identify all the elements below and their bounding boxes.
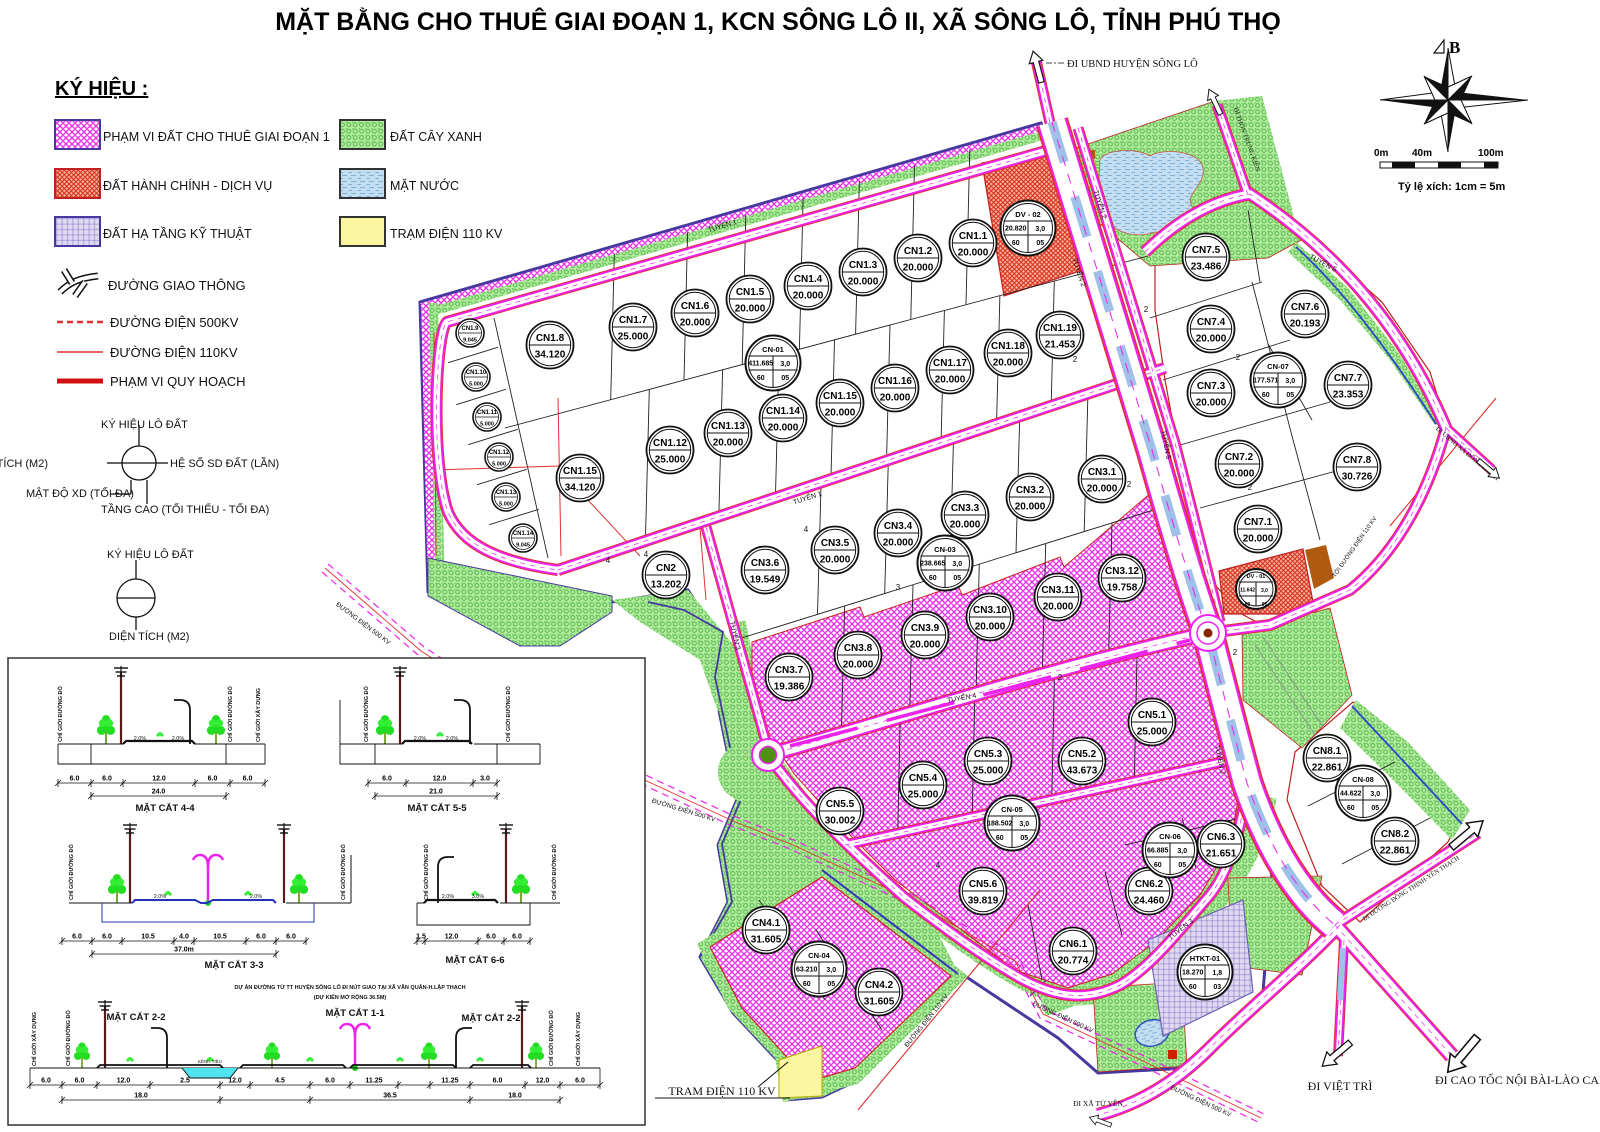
svg-text:CHỈ GIỚI ĐƯỜNG ĐỎ: CHỈ GIỚI ĐƯỜNG ĐỎ [67, 843, 75, 900]
svg-text:CN1.1: CN1.1 [959, 231, 988, 242]
svg-text:ĐI VIỆT TRÌ: ĐI VIỆT TRÌ [1308, 1079, 1373, 1093]
svg-text:ĐƯỜNG ĐIỆN 110KV: ĐƯỜNG ĐIỆN 110KV [110, 345, 238, 360]
svg-text:10.5: 10.5 [213, 934, 227, 941]
svg-text:CN1.16: CN1.16 [878, 376, 912, 387]
svg-text:CHỈ GIỚI ĐƯỜNG ĐỎ: CHỈ GIỚI ĐƯỜNG ĐỎ [550, 843, 558, 900]
svg-text:100m: 100m [1478, 148, 1504, 159]
svg-text:34.120: 34.120 [535, 350, 566, 361]
svg-text:31.605: 31.605 [751, 935, 782, 946]
svg-text:CHỈ GIỚI ĐƯỜNG ĐỎ: CHỈ GIỚI ĐƯỜNG ĐỎ [56, 685, 64, 742]
svg-text:2: 2 [1144, 305, 1149, 314]
svg-text:6.0: 6.0 [72, 934, 82, 941]
svg-text:CN8.2: CN8.2 [1381, 829, 1410, 840]
svg-text:CN1.2: CN1.2 [904, 246, 933, 257]
svg-text:CN-03: CN-03 [934, 545, 956, 554]
svg-text:CHỈ GIỚI ĐƯỜNG ĐỎ: CHỈ GIỚI ĐƯỜNG ĐỎ [422, 843, 430, 900]
svg-text:MẶT CẮT 5-5: MẶT CẮT 5-5 [407, 803, 467, 814]
svg-text:3,0: 3,0 [1261, 588, 1268, 594]
svg-text:20.000: 20.000 [950, 520, 981, 531]
svg-text:20.000: 20.000 [1196, 334, 1227, 345]
svg-text:3,0: 3,0 [1019, 821, 1029, 828]
svg-text:05: 05 [953, 575, 961, 582]
svg-text:(DỰ KIẾN MỞ RỘNG 36.5M): (DỰ KIẾN MỞ RỘNG 36.5M) [314, 993, 387, 1001]
svg-text:CN5.4: CN5.4 [909, 773, 938, 784]
svg-text:4: 4 [644, 550, 649, 559]
svg-text:CN5.2: CN5.2 [1068, 749, 1097, 760]
svg-text:MẬT ĐỘ XD (TỐI ĐA): MẬT ĐỘ XD (TỐI ĐA) [26, 486, 134, 500]
svg-text:20.000: 20.000 [768, 423, 799, 434]
svg-text:CN3.2: CN3.2 [1016, 485, 1045, 496]
svg-text:CN3.5: CN3.5 [821, 538, 850, 549]
svg-text:ĐẤT HẠ TẦNG KỸ THUẬT: ĐẤT HẠ TẦNG KỸ THUẬT [103, 226, 252, 241]
svg-text:KÝ HIỆU LÔ ĐẤT: KÝ HIỆU LÔ ĐẤT [107, 548, 194, 561]
svg-text:CHỈ GIỚI XÂY DỰNG: CHỈ GIỚI XÂY DỰNG [574, 1012, 582, 1066]
svg-text:20.000: 20.000 [680, 318, 711, 329]
svg-text:2.0%: 2.0% [172, 736, 185, 742]
svg-text:2.0%: 2.0% [134, 736, 147, 742]
svg-text:KÊNH TIÊU: KÊNH TIÊU [198, 1057, 222, 1064]
svg-text:CN1.8: CN1.8 [536, 333, 565, 344]
svg-text:21.453: 21.453 [1045, 340, 1076, 351]
svg-text:6.0: 6.0 [486, 934, 496, 941]
svg-text:CHỈ GIỚI ĐƯỜNG ĐỎ: CHỈ GIỚI ĐƯỜNG ĐỎ [226, 685, 234, 742]
svg-text:CN1.15: CN1.15 [823, 391, 857, 402]
svg-text:6.0: 6.0 [325, 1078, 335, 1085]
svg-text:ĐƯỜNG ĐIỆN 500KV: ĐƯỜNG ĐIỆN 500KV [110, 315, 239, 330]
svg-text:66.885: 66.885 [1147, 848, 1169, 855]
svg-text:20.000: 20.000 [903, 263, 934, 274]
svg-text:2: 2 [1127, 480, 1132, 489]
svg-text:CN1.6: CN1.6 [681, 301, 710, 312]
svg-text:CN1.14: CN1.14 [513, 531, 534, 537]
svg-text:2: 2 [1073, 355, 1078, 364]
svg-text:20.000: 20.000 [735, 304, 766, 315]
svg-text:CN1.11: CN1.11 [477, 410, 498, 416]
svg-text:3,0: 3,0 [1285, 378, 1295, 385]
svg-text:21.0: 21.0 [429, 789, 443, 796]
svg-text:CN8.1: CN8.1 [1313, 746, 1342, 757]
svg-text:60: 60 [1012, 240, 1020, 247]
svg-text:CN5.6: CN5.6 [969, 879, 998, 890]
svg-text:18.0: 18.0 [508, 1093, 522, 1100]
svg-text:18.0: 18.0 [134, 1093, 148, 1100]
svg-text:CN5.3: CN5.3 [974, 749, 1003, 760]
svg-text:21.651: 21.651 [1206, 849, 1237, 860]
svg-text:CHỈ GIỚI ĐƯỜNG ĐỎ: CHỈ GIỚI ĐƯỜNG ĐỎ [504, 685, 512, 742]
svg-text:HTKT-01: HTKT-01 [1190, 954, 1220, 963]
svg-text:HỆ SỐ SD ĐẤT (LẦN): HỆ SỐ SD ĐẤT (LẦN) [170, 456, 279, 470]
svg-text:CN6.1: CN6.1 [1059, 939, 1088, 950]
svg-text:CN3.8: CN3.8 [844, 643, 873, 654]
svg-text:20.000: 20.000 [843, 660, 874, 671]
svg-text:2.0%: 2.0% [250, 894, 263, 900]
svg-text:23.353: 23.353 [1333, 390, 1364, 401]
svg-text:20.000: 20.000 [825, 408, 856, 419]
svg-text:40m: 40m [1412, 148, 1432, 159]
svg-text:CN1.4: CN1.4 [794, 274, 823, 285]
svg-text:20.000: 20.000 [935, 375, 966, 386]
svg-text:CN3.4: CN3.4 [884, 521, 913, 532]
svg-text:CN7.5: CN7.5 [1192, 245, 1221, 256]
svg-text:60: 60 [1245, 602, 1251, 608]
svg-text:12.0: 12.0 [536, 1078, 550, 1085]
svg-text:60: 60 [1189, 984, 1197, 991]
svg-text:12.0: 12.0 [433, 776, 447, 783]
svg-text:3,0: 3,0 [1035, 226, 1045, 233]
svg-text:177.571: 177.571 [1253, 378, 1278, 385]
svg-text:18.270: 18.270 [1182, 970, 1204, 977]
svg-text:DV - 02: DV - 02 [1015, 210, 1040, 219]
svg-text:60: 60 [1154, 862, 1162, 869]
svg-text:36.5: 36.5 [383, 1093, 397, 1100]
svg-text:9.045: 9.045 [516, 543, 530, 549]
svg-text:24.460: 24.460 [1134, 896, 1165, 907]
svg-text:CN1.13: CN1.13 [496, 490, 517, 496]
svg-text:60: 60 [996, 835, 1004, 842]
svg-text:ĐƯỜNG GIAO THÔNG: ĐƯỜNG GIAO THÔNG [108, 278, 246, 293]
svg-text:19.758: 19.758 [1107, 583, 1138, 594]
svg-text:CN1.5: CN1.5 [736, 287, 765, 298]
svg-text:20.000: 20.000 [1087, 484, 1118, 495]
svg-text:11.25: 11.25 [441, 1078, 458, 1085]
svg-text:1,8: 1,8 [1212, 970, 1222, 977]
svg-text:03: 03 [1213, 984, 1221, 991]
svg-text:22.861: 22.861 [1312, 763, 1343, 774]
svg-text:MẶT NƯỚC: MẶT NƯỚC [390, 178, 459, 193]
svg-text:2.5: 2.5 [180, 1078, 190, 1085]
svg-text:MẶT CẮT 1-1: MẶT CẮT 1-1 [325, 1008, 385, 1019]
svg-text:20.000: 20.000 [793, 291, 824, 302]
svg-text:12.0: 12.0 [117, 1078, 131, 1085]
svg-text:3,0: 3,0 [1370, 791, 1380, 798]
svg-text:22.861: 22.861 [1380, 846, 1411, 857]
svg-text:20.000: 20.000 [1196, 398, 1227, 409]
svg-text:20.000: 20.000 [1015, 502, 1046, 513]
svg-text:CN1.9: CN1.9 [461, 326, 479, 332]
svg-text:MẶT CẮT 2-2: MẶT CẮT 2-2 [106, 1012, 165, 1023]
svg-text:CN1.3: CN1.3 [849, 260, 878, 271]
svg-text:20.000: 20.000 [880, 393, 911, 404]
svg-text:4: 4 [804, 525, 809, 534]
svg-text:6.0: 6.0 [256, 934, 266, 941]
svg-text:60: 60 [1262, 392, 1270, 399]
svg-text:CN7.2: CN7.2 [1225, 452, 1254, 463]
svg-text:CN-07: CN-07 [1267, 362, 1289, 371]
svg-text:6.0: 6.0 [575, 1078, 585, 1085]
svg-text:6.0: 6.0 [512, 934, 522, 941]
svg-text:4: 4 [936, 861, 941, 870]
svg-text:3: 3 [896, 583, 901, 592]
svg-text:2.0%: 2.0% [442, 894, 455, 900]
svg-text:CN3.3: CN3.3 [951, 503, 980, 514]
svg-text:31.605: 31.605 [864, 997, 895, 1008]
svg-text:20.000: 20.000 [820, 555, 851, 566]
svg-text:CN1.12: CN1.12 [489, 450, 510, 456]
svg-text:MẶT BẰNG CHO THUÊ GIAI ĐOẠN 1,: MẶT BẰNG CHO THUÊ GIAI ĐOẠN 1, KCN SÔNG … [275, 6, 1281, 36]
svg-text:2: 2 [1058, 673, 1063, 682]
svg-text:CN7.1: CN7.1 [1244, 517, 1273, 528]
svg-text:DỰ ÁN ĐƯỜNG TỪ TT HUYỆN SÔNG L: DỰ ÁN ĐƯỜNG TỪ TT HUYỆN SÔNG LÔ ĐI NÚT G… [234, 983, 465, 991]
svg-text:25.000: 25.000 [655, 455, 686, 466]
svg-text:CN-04: CN-04 [808, 951, 831, 960]
svg-text:5.000: 5.000 [469, 382, 483, 388]
svg-text:6.0: 6.0 [41, 1078, 51, 1085]
svg-text:ĐI UBND HUYỆN SÔNG LÔ: ĐI UBND HUYỆN SÔNG LÔ [1067, 58, 1198, 70]
svg-text:20.000: 20.000 [958, 248, 989, 259]
svg-text:19.549: 19.549 [750, 575, 781, 586]
svg-text:CN-08: CN-08 [1352, 775, 1374, 784]
svg-text:B: B [1449, 38, 1460, 57]
svg-text:CHỈ GIỚI ĐƯỜNG ĐỎ: CHỈ GIỚI ĐƯỜNG ĐỎ [64, 1009, 72, 1066]
svg-text:CN3.6: CN3.6 [751, 558, 780, 569]
svg-text:6.0: 6.0 [493, 1078, 503, 1085]
svg-text:MẶT CẮT 3-3: MẶT CẮT 3-3 [204, 960, 263, 971]
svg-text:CN1.12: CN1.12 [653, 438, 687, 449]
svg-text:05: 05 [1262, 602, 1268, 608]
svg-text:6.0: 6.0 [102, 934, 112, 941]
svg-text:9.045: 9.045 [463, 338, 477, 344]
svg-text:20.193: 20.193 [1290, 319, 1321, 330]
svg-text:MẶT CẮT 6-6: MẶT CẮT 6-6 [445, 955, 504, 966]
svg-text:CN7.8: CN7.8 [1343, 455, 1372, 466]
svg-text:CN-01: CN-01 [762, 345, 784, 354]
svg-text:1.5: 1.5 [416, 934, 426, 941]
svg-text:2.0%: 2.0% [154, 894, 167, 900]
svg-text:6.0: 6.0 [286, 934, 296, 941]
svg-text:19.386: 19.386 [774, 682, 805, 693]
svg-text:05: 05 [1036, 240, 1044, 247]
svg-text:6.0: 6.0 [70, 776, 80, 783]
svg-text:6.0: 6.0 [382, 776, 392, 783]
svg-text:188.502: 188.502 [987, 821, 1012, 828]
svg-text:20.000: 20.000 [993, 358, 1024, 369]
svg-text:CN1.14: CN1.14 [766, 406, 800, 417]
svg-text:37.0m: 37.0m [174, 947, 194, 954]
svg-text:39.819: 39.819 [968, 896, 999, 907]
svg-text:CN5.5: CN5.5 [826, 799, 855, 810]
svg-text:43.673: 43.673 [1067, 766, 1098, 777]
svg-text:20.000: 20.000 [910, 640, 941, 651]
svg-text:63.210: 63.210 [796, 967, 818, 974]
svg-text:05: 05 [1178, 862, 1186, 869]
svg-text:25.000: 25.000 [973, 766, 1004, 777]
svg-text:6.0: 6.0 [75, 1078, 85, 1085]
svg-text:25.000: 25.000 [618, 332, 649, 343]
svg-text:05: 05 [827, 981, 835, 988]
svg-text:60: 60 [757, 375, 765, 382]
svg-text:3.0%: 3.0% [472, 894, 485, 900]
svg-text:2: 2 [1236, 353, 1241, 362]
svg-text:4.5: 4.5 [275, 1078, 285, 1085]
svg-text:CN-05: CN-05 [1001, 805, 1023, 814]
svg-text:4: 4 [606, 556, 611, 565]
svg-text:05: 05 [1286, 392, 1294, 399]
svg-text:20.000: 20.000 [848, 277, 879, 288]
svg-text:20.000: 20.000 [883, 538, 914, 549]
svg-text:CN3.11: CN3.11 [1041, 585, 1075, 596]
svg-text:TRẠM ĐIỆN 110 KV: TRẠM ĐIỆN 110 KV [390, 226, 503, 241]
svg-text:CHỈ GIỚI XÂY DỰNG: CHỈ GIỚI XÂY DỰNG [254, 688, 262, 742]
svg-text:KÝ HIỆU LÔ ĐẤT: KÝ HIỆU LÔ ĐẤT [101, 418, 188, 431]
svg-text:12.0: 12.0 [445, 934, 459, 941]
svg-text:DIỆN TÍCH (M2): DIỆN TÍCH (M2) [109, 630, 189, 643]
svg-text:24.0: 24.0 [152, 789, 166, 796]
svg-text:TẦNG CAO (TỐI THIỂU - TỐI ĐA): TẦNG CAO (TỐI THIỂU - TỐI ĐA) [101, 502, 269, 516]
svg-text:CN4.2: CN4.2 [865, 980, 894, 991]
svg-text:CN1.19: CN1.19 [1043, 323, 1077, 334]
svg-text:CN5.1: CN5.1 [1138, 710, 1167, 721]
svg-text:11.25: 11.25 [365, 1078, 382, 1085]
svg-text:2: 2 [1233, 648, 1238, 657]
svg-text:5.000: 5.000 [499, 502, 513, 508]
svg-text:CN7.3: CN7.3 [1197, 381, 1226, 392]
svg-text:CN1.18: CN1.18 [991, 341, 1025, 352]
svg-text:CHỈ GIỚI ĐƯỜNG ĐỎ: CHỈ GIỚI ĐƯỜNG ĐỎ [362, 685, 370, 742]
svg-text:34.120: 34.120 [565, 483, 596, 494]
svg-text:ĐI CAO TỐC NỘI BÀI-LÀO CAI: ĐI CAO TỐC NỘI BÀI-LÀO CAI [1435, 1072, 1600, 1087]
svg-text:60: 60 [1347, 805, 1355, 812]
svg-text:ĐẤT HÀNH CHÍNH - DỊCH VỤ: ĐẤT HÀNH CHÍNH - DỊCH VỤ [103, 178, 272, 193]
svg-text:0m: 0m [1374, 148, 1389, 159]
svg-text:CN3.1: CN3.1 [1088, 467, 1117, 478]
svg-text:4.0: 4.0 [179, 934, 189, 941]
svg-text:05: 05 [1020, 835, 1028, 842]
svg-text:411.685: 411.685 [748, 361, 773, 368]
svg-text:3,0: 3,0 [826, 967, 836, 974]
svg-text:3,0: 3,0 [780, 361, 790, 368]
svg-text:3,0: 3,0 [952, 561, 962, 568]
svg-text:CHỈ GIỚI ĐƯỜNG ĐỎ: CHỈ GIỚI ĐƯỜNG ĐỎ [547, 1009, 555, 1066]
svg-text:CN1.17: CN1.17 [933, 358, 967, 369]
svg-text:ĐI XÃ TỬ YÊN: ĐI XÃ TỬ YÊN [1073, 1098, 1123, 1108]
svg-text:CN3.12: CN3.12 [1105, 566, 1139, 577]
svg-text:60: 60 [803, 981, 811, 988]
svg-text:CN6.3: CN6.3 [1207, 832, 1236, 843]
svg-text:ĐẤT CÂY XANH: ĐẤT CÂY XANH [390, 129, 482, 144]
svg-text:23.486: 23.486 [1191, 262, 1222, 273]
svg-text:44.622: 44.622 [1340, 791, 1362, 798]
svg-text:20.000: 20.000 [1043, 602, 1074, 613]
svg-text:30.002: 30.002 [825, 816, 856, 827]
svg-text:60: 60 [929, 575, 937, 582]
svg-text:CN1.10: CN1.10 [466, 370, 487, 376]
svg-text:CN2: CN2 [656, 563, 676, 574]
svg-text:5.000: 5.000 [492, 462, 506, 468]
svg-text:CN-06: CN-06 [1159, 832, 1181, 841]
svg-text:CN7.4: CN7.4 [1197, 317, 1226, 328]
svg-text:11.642: 11.642 [1240, 588, 1255, 594]
svg-text:6.0: 6.0 [243, 776, 253, 783]
svg-text:CN3.9: CN3.9 [911, 623, 940, 634]
svg-text:20.000: 20.000 [975, 622, 1006, 633]
svg-text:MẶT CẮT 2-2: MẶT CẮT 2-2 [461, 1013, 520, 1024]
svg-text:12.0: 12.0 [152, 776, 166, 783]
svg-text:CN1.7: CN1.7 [619, 315, 648, 326]
svg-text:CN6.2: CN6.2 [1135, 879, 1164, 890]
svg-text:3,0: 3,0 [1177, 848, 1187, 855]
svg-text:DV - 01: DV - 01 [1247, 574, 1266, 580]
svg-text:PHẠM VI QUY HOẠCH: PHẠM VI QUY HOẠCH [110, 374, 246, 389]
svg-text:25.000: 25.000 [1137, 727, 1168, 738]
svg-text:MẶT CẮT 4-4: MẶT CẮT 4-4 [135, 803, 195, 814]
svg-text:25.000: 25.000 [908, 790, 939, 801]
svg-text:12.0: 12.0 [228, 1078, 242, 1085]
svg-text:20.820: 20.820 [1005, 226, 1027, 233]
svg-text:20.774: 20.774 [1058, 956, 1089, 967]
svg-text:CN3.10: CN3.10 [973, 605, 1007, 616]
svg-text:05: 05 [1371, 805, 1379, 812]
svg-text:CHỈ GIỚI ĐƯỜNG ĐỎ: CHỈ GIỚI ĐƯỜNG ĐỎ [339, 843, 347, 900]
svg-text:2.0%: 2.0% [414, 736, 427, 742]
svg-text:5.000: 5.000 [480, 422, 494, 428]
svg-text:05: 05 [781, 375, 789, 382]
svg-text:10.5: 10.5 [141, 934, 155, 941]
svg-text:KÝ HIỆU :: KÝ HIỆU : [55, 76, 148, 100]
svg-text:PHẠM VI ĐẤT CHO THUÊ GIAI ĐOẠN: PHẠM VI ĐẤT CHO THUÊ GIAI ĐOẠN 1 [103, 129, 330, 144]
svg-text:30.726: 30.726 [1342, 472, 1373, 483]
svg-text:6.0: 6.0 [102, 776, 112, 783]
svg-text:20.000: 20.000 [1224, 469, 1255, 480]
svg-text:20.000: 20.000 [713, 438, 744, 449]
svg-text:2.0%: 2.0% [446, 736, 459, 742]
svg-text:238.665: 238.665 [920, 561, 945, 568]
svg-text:CN4.1: CN4.1 [752, 918, 781, 929]
svg-text:13.202: 13.202 [651, 580, 682, 591]
svg-text:CN1.15: CN1.15 [563, 466, 597, 477]
svg-text:DIỆN TÍCH (M2): DIỆN TÍCH (M2) [0, 457, 48, 470]
svg-text:CN3.7: CN3.7 [775, 665, 804, 676]
svg-text:20.000: 20.000 [1243, 534, 1274, 545]
svg-text:2: 2 [1248, 483, 1253, 492]
svg-text:6.0: 6.0 [208, 776, 218, 783]
svg-text:CN7.7: CN7.7 [1334, 373, 1363, 384]
svg-text:CN1.13: CN1.13 [711, 421, 745, 432]
svg-text:CHỈ GIỚI XÂY DỰNG: CHỈ GIỚI XÂY DỰNG [30, 1012, 38, 1066]
svg-text:CN7.6: CN7.6 [1291, 302, 1320, 313]
svg-text:3.0: 3.0 [480, 776, 490, 783]
svg-text:Tỷ lệ xích: 1cm = 5m: Tỷ lệ xích: 1cm = 5m [1398, 181, 1506, 193]
